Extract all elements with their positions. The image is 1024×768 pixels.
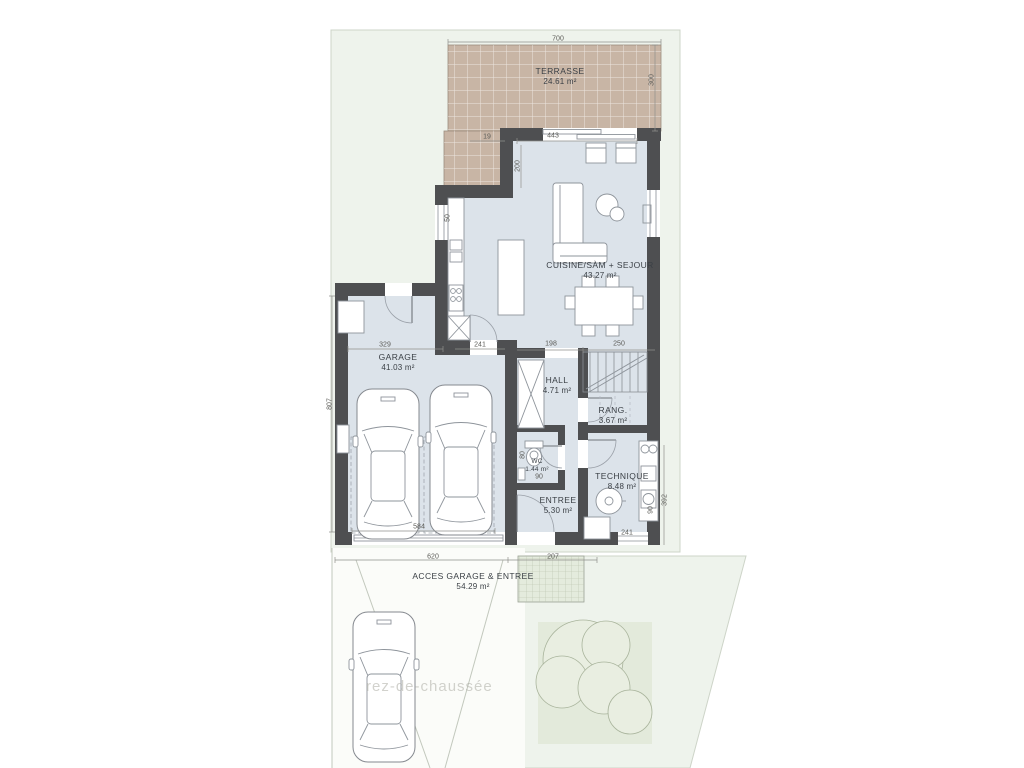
room-label-entree: ENTREE 5.30 m² bbox=[540, 495, 577, 516]
room-area: 41.03 m² bbox=[379, 363, 418, 373]
dim-label: 241 bbox=[621, 530, 633, 537]
room-name: GARAGE bbox=[379, 352, 418, 363]
dim-label: 250 bbox=[613, 341, 625, 348]
dim-label: 392 bbox=[662, 494, 669, 506]
room-name: CUISINE/SÀM + SEJOUR bbox=[546, 260, 653, 271]
room-name: HALL bbox=[543, 375, 572, 386]
dim-label: 200 bbox=[515, 160, 522, 172]
room-label-wc: WC 1.44 m² bbox=[525, 458, 548, 475]
kitchen-island bbox=[498, 240, 524, 315]
dim-label: 807 bbox=[327, 398, 334, 410]
dim-label: 584 bbox=[413, 524, 425, 531]
room-area: 8.48 m² bbox=[595, 482, 649, 492]
storage-box bbox=[584, 517, 610, 539]
room-label-technique: TECHNIQUE 8.48 m² bbox=[595, 471, 649, 492]
room-area: 43.27 m² bbox=[546, 271, 653, 281]
dim-label: 241 bbox=[474, 342, 486, 349]
dim-label: 19 bbox=[483, 134, 491, 141]
room-name: ACCES GARAGE & ENTREE bbox=[412, 571, 533, 582]
watermark-text: rez-de-chaussée bbox=[366, 678, 493, 695]
tree-icon bbox=[536, 620, 652, 744]
garage-shelf bbox=[338, 301, 364, 333]
dim-label: 620 bbox=[427, 554, 439, 561]
window-icon bbox=[435, 205, 448, 240]
dim-label: 300 bbox=[649, 74, 656, 86]
dim-label: 80 bbox=[520, 451, 527, 459]
room-name: WC bbox=[525, 458, 548, 466]
dim-label: 50 bbox=[445, 214, 452, 222]
room-name: ENTREE bbox=[540, 495, 577, 506]
dim-label: 90 bbox=[648, 506, 655, 514]
floor-plan-page: TERRASSE 24.61 m² CUISINE/SÀM + SEJOUR 4… bbox=[0, 0, 1024, 768]
car-icon bbox=[426, 385, 496, 535]
car-icon bbox=[353, 389, 423, 539]
room-area: 54.29 m² bbox=[412, 582, 533, 592]
dim-label: 700 bbox=[552, 36, 564, 43]
armchair bbox=[616, 143, 636, 163]
wardrobe bbox=[518, 360, 544, 428]
dim-label: 329 bbox=[379, 342, 391, 349]
room-label-terrasse: TERRASSE 24.61 m² bbox=[535, 66, 584, 87]
dim-label: 207 bbox=[547, 554, 559, 561]
room-label-acces: ACCES GARAGE & ENTREE 54.29 m² bbox=[412, 571, 533, 592]
dim-label: 90 bbox=[535, 474, 543, 481]
room-name: RANG. bbox=[599, 405, 628, 416]
room-name: TECHNIQUE bbox=[595, 471, 649, 482]
room-label-hall: HALL 4.71 m² bbox=[543, 375, 572, 396]
dim-label: 198 bbox=[545, 341, 557, 348]
room-area: 24.61 m² bbox=[535, 77, 584, 87]
garage-shelf bbox=[337, 425, 349, 453]
room-label-cuisine: CUISINE/SÀM + SEJOUR 43.27 m² bbox=[546, 260, 653, 281]
room-label-rang: RANG. 3.67 m² bbox=[599, 405, 628, 426]
armchair bbox=[586, 143, 606, 163]
room-label-garage: GARAGE 41.03 m² bbox=[379, 352, 418, 373]
floor-plan-drawing bbox=[0, 0, 1024, 768]
room-area: 4.71 m² bbox=[543, 386, 572, 396]
room-name: TERRASSE bbox=[535, 66, 584, 77]
dim-label: 443 bbox=[547, 133, 559, 140]
room-area: 5.30 m² bbox=[540, 506, 577, 516]
opening bbox=[545, 348, 578, 358]
room-area: 3.67 m² bbox=[599, 416, 628, 426]
